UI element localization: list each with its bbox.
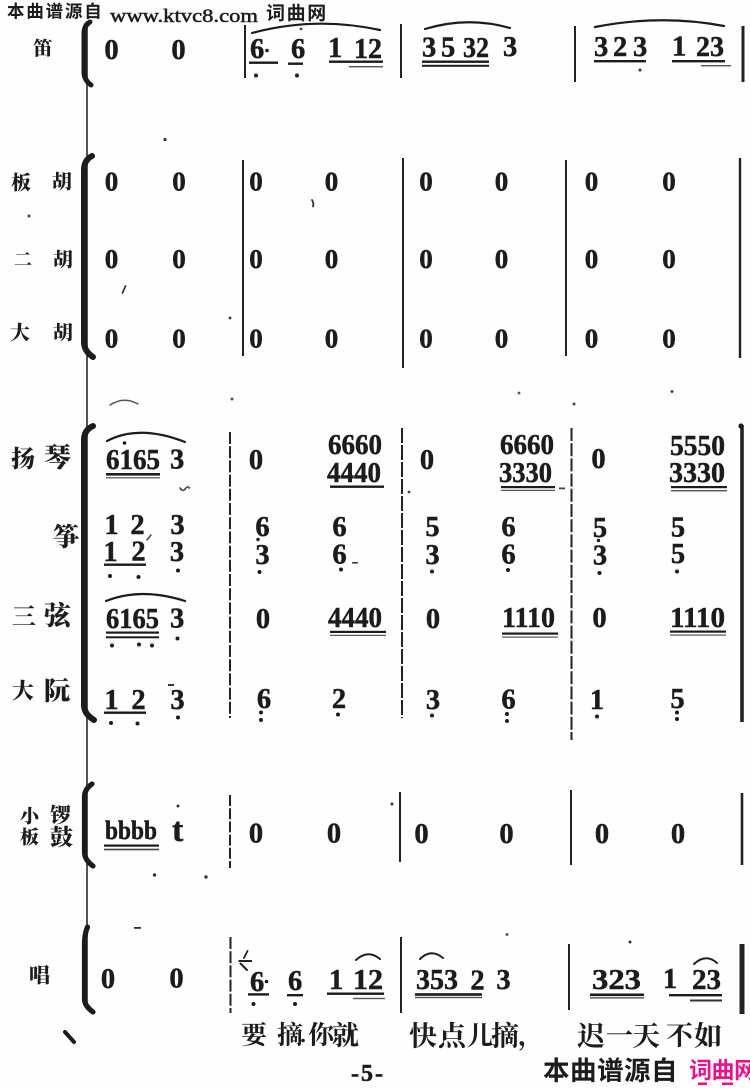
svg-text:0: 0 xyxy=(104,35,118,66)
svg-text:0: 0 xyxy=(662,244,676,274)
svg-text:32: 32 xyxy=(463,33,489,64)
svg-text:3: 3 xyxy=(496,965,510,996)
svg-text:6660: 6660 xyxy=(500,430,554,461)
svg-text:1: 1 xyxy=(329,965,343,996)
svg-text:0: 0 xyxy=(420,445,434,476)
svg-text:2: 2 xyxy=(613,32,627,63)
svg-text:0: 0 xyxy=(327,819,341,850)
svg-text:6: 6 xyxy=(257,684,271,715)
svg-text:3330: 3330 xyxy=(669,458,725,489)
svg-text:0: 0 xyxy=(249,324,263,354)
svg-text:0: 0 xyxy=(585,167,599,197)
svg-text:0: 0 xyxy=(419,167,433,197)
svg-text:0: 0 xyxy=(325,324,339,354)
svg-text:bbbb: bbbb xyxy=(105,816,157,845)
svg-text:12: 12 xyxy=(354,34,382,65)
svg-text:0: 0 xyxy=(325,244,339,274)
svg-text:6: 6 xyxy=(501,512,515,543)
svg-text:2: 2 xyxy=(131,537,145,568)
svg-text:6: 6 xyxy=(332,540,346,571)
svg-text:1110: 1110 xyxy=(502,603,555,634)
svg-text:0: 0 xyxy=(414,819,428,850)
svg-text:3330: 3330 xyxy=(499,458,552,489)
svg-text:-5-: -5- xyxy=(351,1061,385,1085)
svg-text:3: 3 xyxy=(593,541,607,572)
svg-text:0: 0 xyxy=(495,244,509,274)
svg-text:0: 0 xyxy=(169,964,183,995)
svg-text:0: 0 xyxy=(171,35,185,66)
svg-text:6165: 6165 xyxy=(106,604,159,635)
svg-text:6: 6 xyxy=(501,540,515,571)
svg-text:3: 3 xyxy=(425,540,439,571)
svg-text:0: 0 xyxy=(105,244,119,274)
svg-text:1: 1 xyxy=(590,685,604,716)
svg-text:12: 12 xyxy=(353,965,383,996)
svg-text:3: 3 xyxy=(170,445,184,476)
svg-text:3: 3 xyxy=(633,32,647,63)
svg-text:0: 0 xyxy=(591,444,605,475)
svg-text:23: 23 xyxy=(696,32,724,63)
svg-text:6: 6 xyxy=(332,512,346,543)
svg-text:0: 0 xyxy=(585,244,599,274)
svg-text:6: 6 xyxy=(291,34,305,65)
svg-text:www.ktvc8.com: www.ktvc8.com xyxy=(110,6,258,27)
svg-text:0: 0 xyxy=(662,324,676,354)
svg-text:0: 0 xyxy=(495,167,509,197)
svg-text:5: 5 xyxy=(441,33,455,64)
svg-text:0: 0 xyxy=(172,324,186,354)
svg-text:0: 0 xyxy=(105,324,119,354)
svg-text:0: 0 xyxy=(419,244,433,274)
svg-text:23: 23 xyxy=(692,965,721,996)
svg-text:1110: 1110 xyxy=(670,603,725,634)
svg-text:0: 0 xyxy=(249,167,263,197)
svg-text:0: 0 xyxy=(249,244,263,274)
svg-text:0: 0 xyxy=(101,964,115,995)
svg-text:0: 0 xyxy=(172,167,186,197)
svg-text:1: 1 xyxy=(103,537,117,568)
svg-text:6: 6 xyxy=(288,966,302,997)
svg-text:0: 0 xyxy=(426,604,440,635)
svg-text:3: 3 xyxy=(170,604,184,635)
svg-text:2: 2 xyxy=(470,966,484,997)
svg-text:5: 5 xyxy=(593,513,607,544)
svg-text:6: 6 xyxy=(250,34,264,65)
svg-text:323: 323 xyxy=(592,965,641,996)
svg-text:5: 5 xyxy=(671,539,685,570)
svg-text:0: 0 xyxy=(105,167,119,197)
svg-text:353: 353 xyxy=(416,965,458,996)
svg-text:0: 0 xyxy=(585,324,599,354)
svg-text:2: 2 xyxy=(332,684,346,715)
svg-text:6165: 6165 xyxy=(106,445,160,476)
svg-text:0: 0 xyxy=(325,167,339,197)
svg-text:3: 3 xyxy=(170,537,184,568)
svg-text:0: 0 xyxy=(172,244,186,274)
svg-text:0: 0 xyxy=(256,604,270,635)
svg-text:3: 3 xyxy=(426,685,440,716)
svg-text:5: 5 xyxy=(670,684,684,715)
svg-text:1: 1 xyxy=(663,964,677,995)
svg-text:4440: 4440 xyxy=(327,458,381,489)
svg-text:0: 0 xyxy=(249,445,263,476)
svg-text:1: 1 xyxy=(672,32,686,63)
svg-text:3: 3 xyxy=(503,32,517,63)
svg-text:3: 3 xyxy=(255,540,269,571)
svg-text:0: 0 xyxy=(671,819,685,850)
svg-text:3: 3 xyxy=(594,32,608,63)
svg-text:0: 0 xyxy=(595,819,609,850)
svg-text:5: 5 xyxy=(425,512,439,543)
svg-text:0: 0 xyxy=(495,324,509,354)
svg-text:3: 3 xyxy=(422,33,436,64)
svg-text:2: 2 xyxy=(131,685,145,716)
svg-text:0: 0 xyxy=(662,167,676,197)
svg-text:4440: 4440 xyxy=(328,603,382,634)
svg-text:6: 6 xyxy=(501,685,515,716)
svg-text:0: 0 xyxy=(249,819,263,850)
svg-text:0: 0 xyxy=(592,603,606,634)
svg-text:0: 0 xyxy=(499,819,513,850)
svg-text:6660: 6660 xyxy=(328,430,382,461)
svg-text:t: t xyxy=(172,812,184,849)
svg-text:1: 1 xyxy=(328,33,342,64)
svg-text:3: 3 xyxy=(170,685,184,716)
svg-text:0: 0 xyxy=(419,324,433,354)
svg-text:1: 1 xyxy=(104,685,118,716)
